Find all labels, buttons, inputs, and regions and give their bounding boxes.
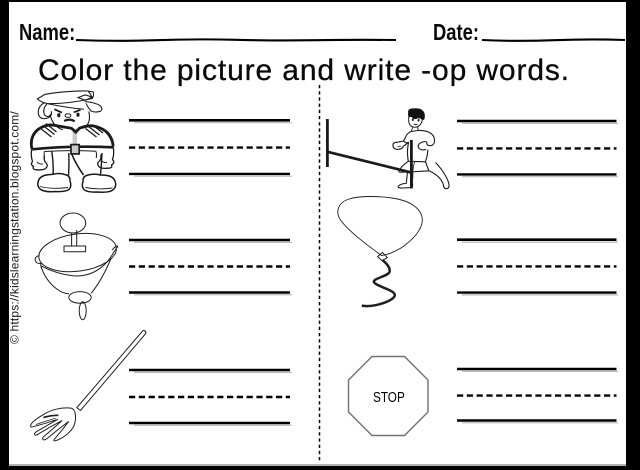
svg-text:© https://kidslearningstation.: © https://kidslearningstation.blogspot.c… <box>8 111 22 344</box>
svg-text:Color the picture and write -o: Color the picture and write -op words. <box>38 54 570 87</box>
svg-text:Name:: Name: <box>19 20 75 45</box>
svg-text:Date:: Date: <box>433 20 479 45</box>
svg-text:STOP: STOP <box>373 389 405 406</box>
